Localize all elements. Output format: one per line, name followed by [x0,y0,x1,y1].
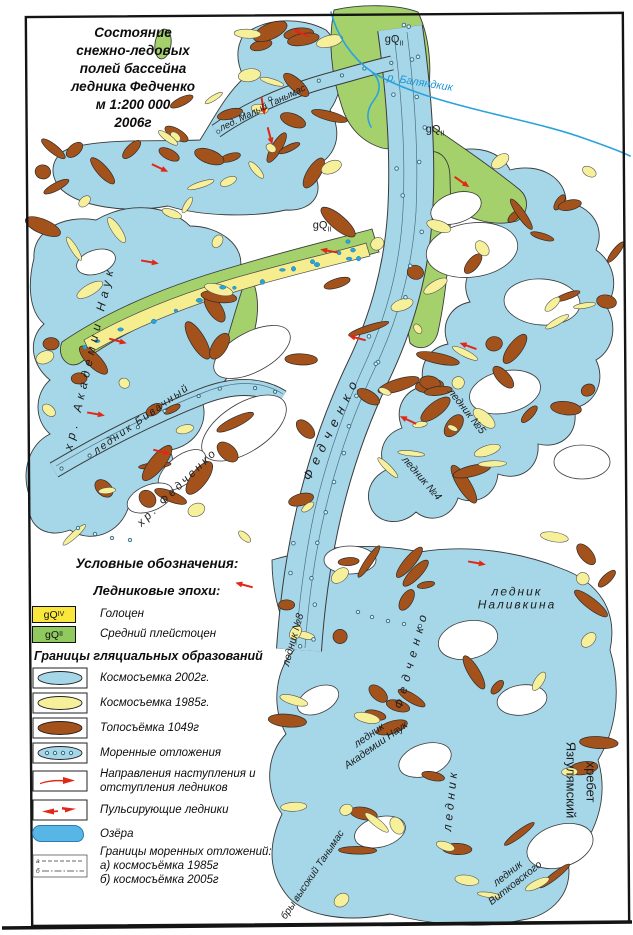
legend-row-topo1049: Топосъёмка 1049г [32,717,272,739]
map-page: Состояние снежно-ледовых полей бассейна … [0,0,633,935]
legend-label: Топосъёмка 1049г [100,721,199,735]
legend-label: Космосъемка 2002г. [100,671,209,685]
direction-arrow-swatch [32,769,90,793]
moraine-swatch [32,742,90,764]
legend-row-lakes: Озёра [32,825,272,842]
map-label-gq-right: gQII [426,123,445,138]
map-title: Состояние снежно-ледовых полей бассейна … [34,24,232,132]
legend-label: Пульсирующие ледники [100,803,228,817]
legend-label: Космосъемка 1985г. [100,696,209,710]
legend-row-directions: Направления наступления и отступления ле… [32,767,272,795]
topo1049-swatch [32,717,90,739]
svg-text:б: б [36,867,40,875]
map-label-yazgulyam-2: хребет [583,762,598,803]
legend-row-moraine: Моренные отложения [32,742,272,764]
map-label-nalivkina: ледник Наливкина [459,586,575,613]
legend-label: Голоцен [100,607,144,621]
legend-boundaries-heading: Границы гляциальных образований [34,649,272,663]
moraine-borders-swatch: а б [32,853,90,879]
map-label-gq-top: gQII [385,33,404,48]
map-label-yazgulyam-1: Язгулямский [563,742,578,819]
legend: Условные обозначения: Ледниковые эпохи: … [32,556,272,890]
pulsing-glacier-swatch [32,798,90,822]
legend-row-moraine-borders: а б Границы моренных отложений: а) космо… [32,845,272,887]
legend-row-space1985: Космосъемка 1985г. [32,692,272,714]
legend-label: Границы моренных отложений: а) космосъём… [100,845,272,887]
legend-epochs-heading: Ледниковые эпохи: [42,583,272,598]
legend-label: Направления наступления и отступления ле… [100,767,272,795]
legend-row-pleistocene: gQII Средний плейстоцен [32,626,272,643]
pleistocene-swatch: gQII [32,626,76,643]
legend-heading: Условные обозначения: [42,556,272,571]
legend-row-holocene: gQIV Голоцен [32,606,272,623]
legend-label: Моренные отложения [100,746,221,760]
legend-label: Озёра [100,827,133,841]
legend-label: Средний плейстоцен [100,627,216,641]
space2002-swatch [32,667,90,689]
space1985-swatch [32,692,90,714]
legend-row-space2002: Космосъемка 2002г. [32,667,272,689]
legend-row-pulsing: Пульсирующие ледники [32,798,272,822]
holocene-swatch: gQIV [32,606,76,623]
lake-swatch [32,825,84,842]
svg-text:а: а [36,858,40,865]
map-label-gq-mid: gQII [313,219,332,234]
